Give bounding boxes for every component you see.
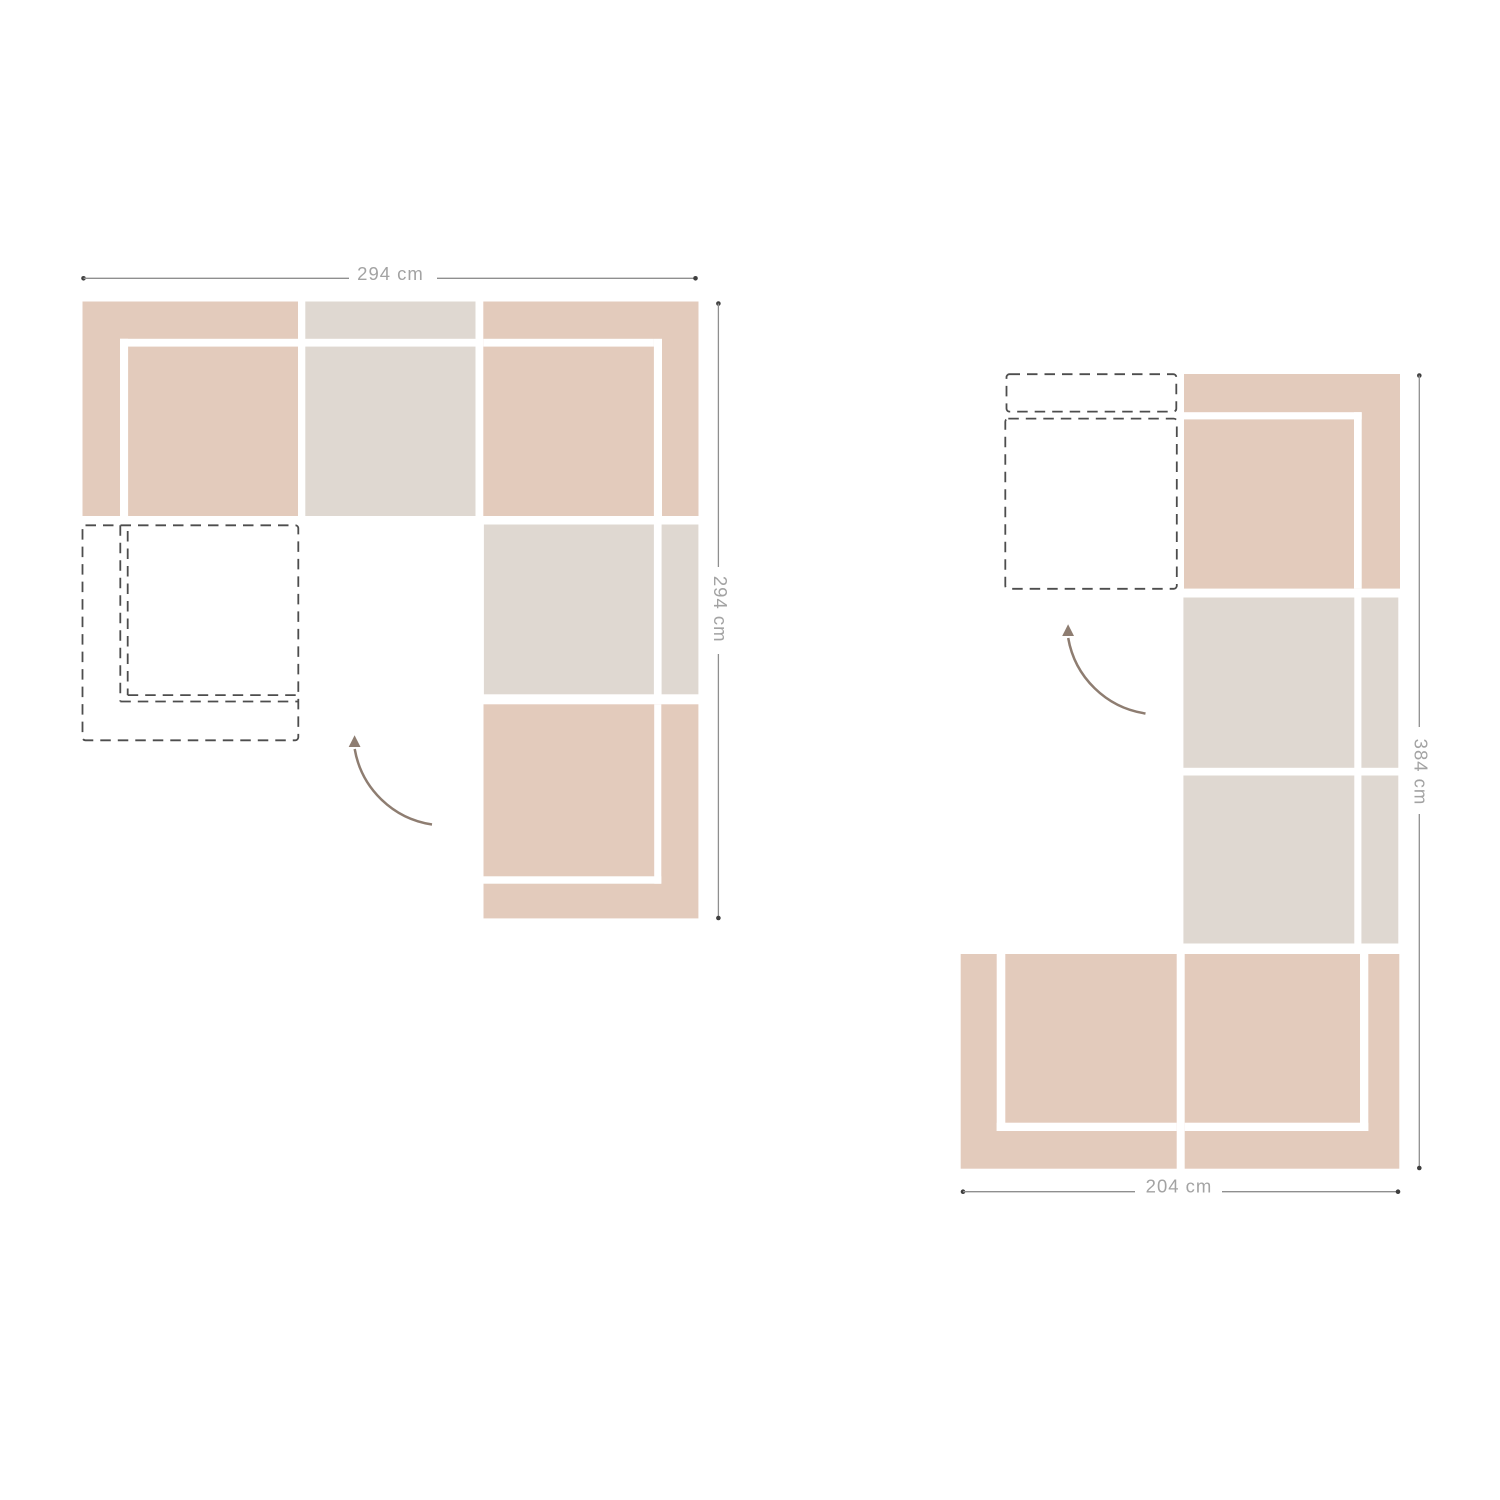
svg-text:294 cm: 294 cm [357,263,424,284]
svg-text:294 cm: 294 cm [710,576,731,643]
svg-text:384 cm: 384 cm [1410,739,1431,806]
svg-text:204 cm: 204 cm [1146,1176,1213,1197]
